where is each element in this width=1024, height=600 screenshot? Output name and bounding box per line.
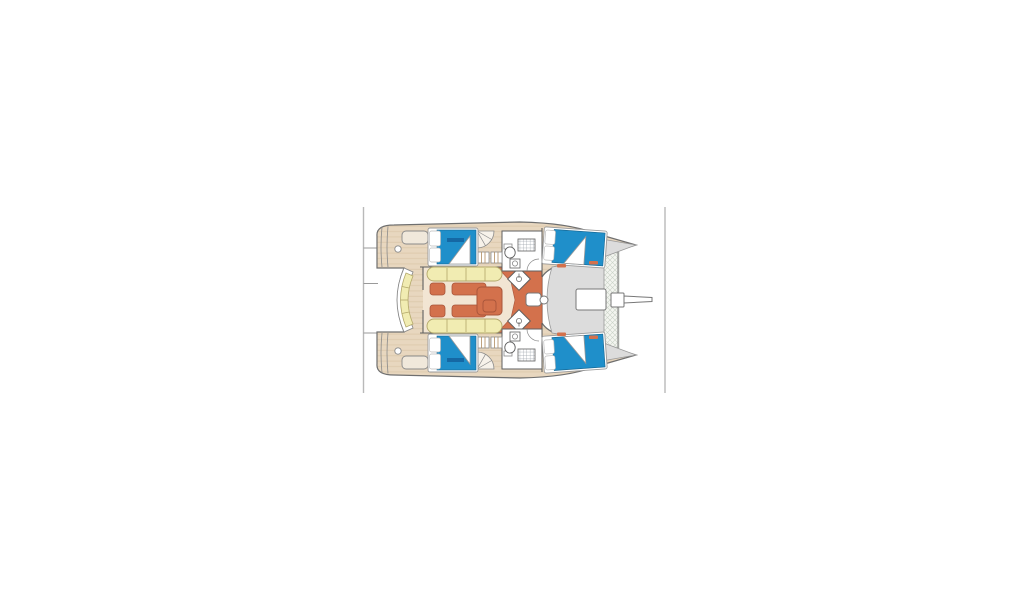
bowsprit-pole — [624, 296, 652, 303]
locker — [478, 252, 489, 263]
pillow — [430, 231, 441, 246]
pillow — [544, 246, 555, 261]
stern-locker — [402, 231, 428, 244]
anchor-locker — [576, 289, 606, 310]
deck-fitting — [589, 261, 598, 265]
settee — [427, 267, 502, 281]
page — [0, 0, 1024, 600]
port-aft-cabin-berth — [428, 228, 478, 266]
saloon-front-door — [526, 293, 541, 306]
port-head — [502, 231, 542, 271]
washbasin — [510, 259, 520, 268]
shower-grate — [518, 239, 535, 251]
saloon-table — [477, 287, 502, 315]
toilet — [505, 247, 515, 258]
windlass-box — [611, 293, 624, 307]
bed-dimension-label — [447, 238, 464, 242]
locker — [491, 252, 502, 263]
pillow — [430, 248, 441, 262]
pillow — [545, 230, 556, 245]
stool — [430, 283, 445, 295]
mast-base — [540, 296, 548, 304]
starboard-head — [502, 329, 542, 369]
deck-fitting — [557, 264, 566, 268]
catamaran-layout-diagram — [0, 0, 1024, 600]
starboard-aft-cabin-berth — [428, 334, 478, 372]
winch — [395, 246, 401, 252]
